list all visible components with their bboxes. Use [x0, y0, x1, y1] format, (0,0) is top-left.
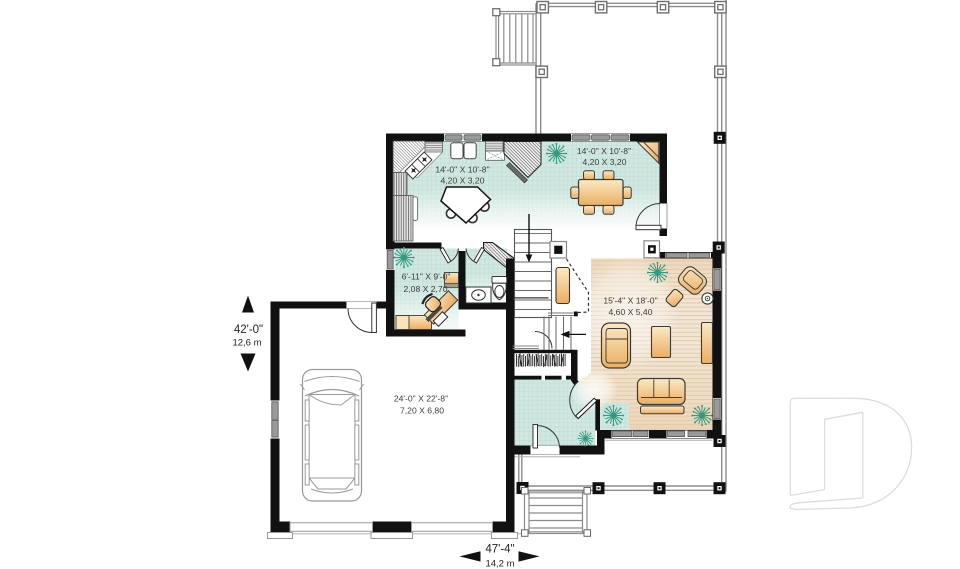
svg-text:15'-4" X 18'-0": 15'-4" X 18'-0": [603, 296, 657, 306]
svg-text:47'-4": 47'-4": [485, 544, 514, 556]
svg-text:42'-0": 42'-0": [234, 324, 263, 336]
svg-text:6'-11" X 9'-0": 6'-11" X 9'-0": [402, 272, 451, 282]
svg-text:2,08 X 2,70: 2,08 X 2,70: [404, 284, 448, 294]
svg-text:14'-0" X 10'-8": 14'-0" X 10'-8": [435, 165, 489, 175]
svg-text:14,2 m: 14,2 m: [485, 559, 514, 569]
svg-text:4,20 X 3,20: 4,20 X 3,20: [583, 157, 627, 167]
svg-text:14'-0" X 10'-8": 14'-0" X 10'-8": [577, 146, 631, 156]
svg-text:24'-0" X 22'-8": 24'-0" X 22'-8": [394, 394, 448, 404]
svg-text:4,20 X 3,20: 4,20 X 3,20: [441, 176, 485, 186]
svg-text:4,60 X 5,40: 4,60 X 5,40: [609, 307, 653, 317]
svg-text:7,20 X 6,80: 7,20 X 6,80: [400, 406, 444, 416]
svg-text:12,6 m: 12,6 m: [232, 338, 261, 349]
